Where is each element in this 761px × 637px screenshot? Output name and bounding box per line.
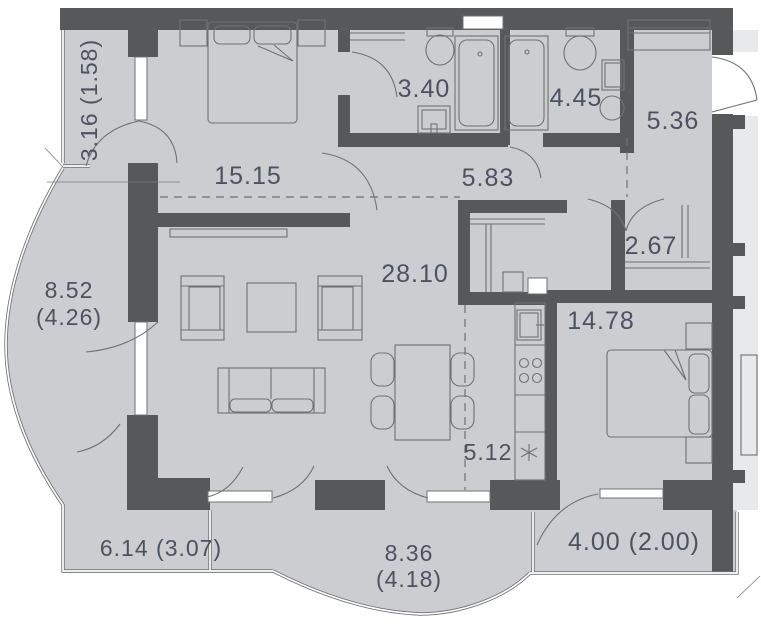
label-bathroom-1: 3.40 [398, 75, 451, 103]
label-wardrobe: 2.67 [625, 232, 678, 260]
duct-opening [463, 16, 503, 29]
balcony-door-sill-1 [208, 491, 272, 502]
label-kitchen: 5.12 [464, 439, 513, 465]
balcony-door-sill-3 [600, 489, 663, 498]
label-bathroom-2: 4.45 [550, 84, 603, 112]
label-bedroom-2: 14.78 [567, 307, 635, 335]
label-corridor: 5.83 [462, 164, 515, 192]
label-balcony-top-left: 3.16 (1.58) [76, 39, 102, 161]
label-balcony-bottom-mid-reduced: (4.18) [376, 566, 442, 592]
label-bedroom-1: 15.15 [214, 162, 282, 190]
window-balcony-1 [135, 57, 147, 120]
label-balcony-left: 8.52 [45, 277, 94, 303]
label-balcony-left-reduced: (4.26) [36, 304, 102, 330]
balcony-door-sill-2 [427, 491, 490, 502]
floor-plan: 3.16 (1.58) 15.15 3.40 4.45 5.36 5.83 2.… [0, 0, 761, 637]
floor-plan-canvas: 3.16 (1.58) 15.15 3.40 4.45 5.36 5.83 2.… [0, 0, 761, 637]
shaft-opening [528, 278, 547, 294]
label-living-room: 28.10 [381, 260, 449, 288]
floor-fill-layer [6, 8, 761, 614]
window-living [135, 322, 147, 415]
label-balcony-bottom-mid: 8.36 [385, 540, 434, 566]
label-balcony-bottom-right: 4.00 (2.00) [568, 528, 700, 556]
label-balcony-bottom-left: 6.14 (3.07) [100, 535, 222, 561]
label-hallway: 5.36 [647, 107, 700, 135]
entry-opening [712, 55, 733, 114]
